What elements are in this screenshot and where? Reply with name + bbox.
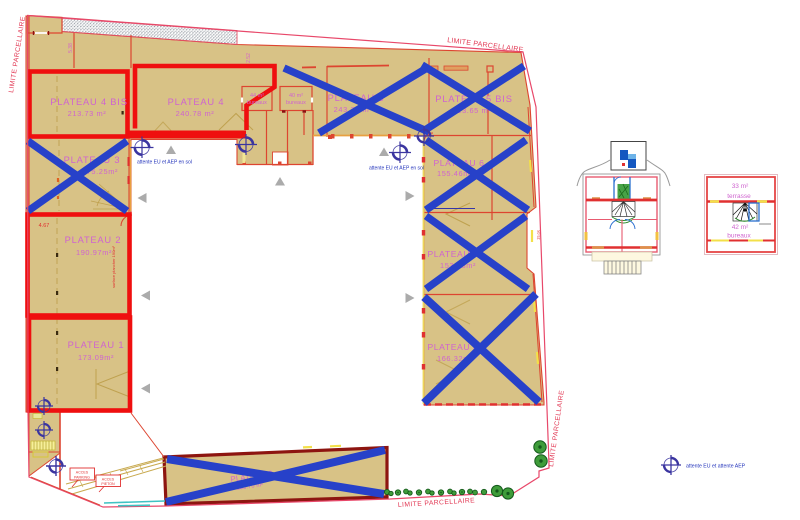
- svg-text:attente EU et attente AEP: attente EU et attente AEP: [686, 464, 746, 470]
- svg-text:bureaux: bureaux: [727, 233, 751, 240]
- svg-text:bureaux: bureaux: [286, 100, 306, 106]
- svg-text:ACCES: ACCES: [76, 471, 89, 475]
- svg-text:240.78 m²: 240.78 m²: [176, 109, 215, 118]
- svg-text:2.52: 2.52: [246, 53, 252, 63]
- svg-text:PARKING: PARKING: [74, 475, 90, 479]
- svg-text:40 m²: 40 m²: [289, 93, 303, 99]
- svg-text:LIMITE PARCELLAIRE: LIMITE PARCELLAIRE: [548, 390, 566, 468]
- svg-text:bureaux: bureaux: [247, 100, 267, 106]
- svg-text:attente EU et AEP en sol: attente EU et AEP en sol: [137, 160, 192, 166]
- svg-text:33 m²: 33 m²: [732, 183, 749, 190]
- svg-text:5.38: 5.38: [68, 43, 74, 53]
- svg-text:PLATEAU 4: PLATEAU 4: [168, 97, 225, 107]
- svg-text:surface plancher 190m²: surface plancher 190m²: [111, 245, 116, 288]
- svg-text:4.67: 4.67: [39, 223, 50, 229]
- svg-text:PLATEAU 2: PLATEAU 2: [65, 235, 122, 245]
- svg-text:213.73 m²: 213.73 m²: [68, 109, 107, 118]
- svg-text:173.09m²: 173.09m²: [78, 353, 114, 362]
- svg-text:42 m²: 42 m²: [732, 224, 749, 231]
- svg-text:PLATEAU 1: PLATEAU 1: [68, 340, 125, 350]
- svg-text:terrasse: terrasse: [727, 193, 751, 200]
- svg-text:LIMITE PARCELLAIRE: LIMITE PARCELLAIRE: [398, 497, 476, 509]
- svg-text:190.97m²: 190.97m²: [76, 248, 112, 257]
- svg-text:PLATEAU 4 BIS: PLATEAU 4 BIS: [50, 97, 127, 107]
- svg-text:attente EU et AEP en sol: attente EU et AEP en sol: [369, 166, 424, 172]
- svg-text:ACCES: ACCES: [102, 478, 115, 482]
- svg-text:PIETON: PIETON: [101, 482, 115, 486]
- svg-text:LIMITE PARCELLAIRE: LIMITE PARCELLAIRE: [8, 16, 27, 94]
- svg-text:44 m²: 44 m²: [250, 93, 264, 99]
